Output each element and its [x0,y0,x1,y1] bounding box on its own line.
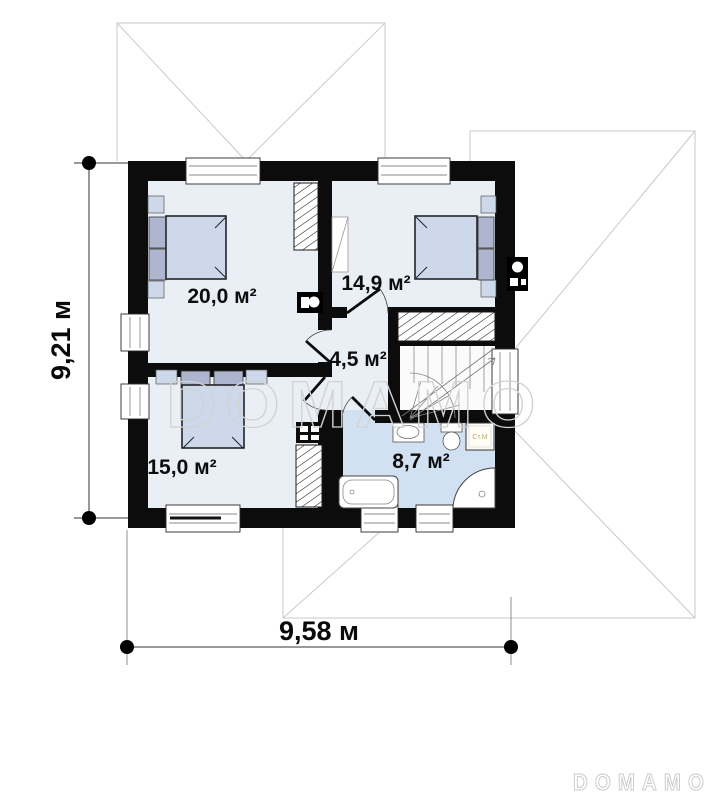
window-left-1 [121,314,149,351]
dimension-bottom: 9,58 м [120,530,518,665]
area-label-bedroom-top-left: 20,0 м² [187,285,256,308]
chimney-right-wall [507,257,528,291]
bathtub [339,476,398,508]
nightstand [481,280,496,297]
vent-interior-wall [297,292,323,313]
dimension-left: 9,21 м [46,156,128,525]
wardrobe-over-stairs [398,312,495,341]
area-label-bathroom: 8,7 м² [392,450,450,473]
window-bottom-2 [361,505,398,532]
window-left-2 [121,384,149,419]
window-top-1 [186,158,260,184]
dimension-dot [82,511,96,525]
dimension-height-label: 9,21 м [46,300,76,380]
dimension-dot [82,156,96,170]
cabinet-bedroom-top-right [332,217,348,272]
floor-plan-drawing: 9,21 м 9,58 м [0,0,727,800]
wardrobe-bedroom-bottom-left [296,445,322,507]
pillow [478,249,494,280]
pillow [478,217,494,248]
pillow [149,217,166,248]
nightstand [148,196,164,213]
floor-plan-canvas: 9,21 м 9,58 м [0,0,727,800]
watermark-text: DOMAMO [166,367,544,441]
window-bottom-1 [166,505,240,532]
wardrobe-bedroom-top-left [294,183,318,250]
roof-outline-top [117,23,385,161]
nightstand [481,196,496,213]
nightstand [148,281,164,298]
area-label-bedroom-bottom-left: 15,0 м² [147,456,216,479]
window-top-2 [378,158,450,184]
window-bottom-3 [416,505,453,532]
pillow [149,249,166,280]
logo-text: DOMAMO [573,769,711,795]
dimension-dot [504,640,518,654]
area-label-bedroom-top-right: 14,9 м² [341,272,410,295]
dimension-width-label: 9,58 м [279,616,359,646]
dimension-dot [120,640,134,654]
